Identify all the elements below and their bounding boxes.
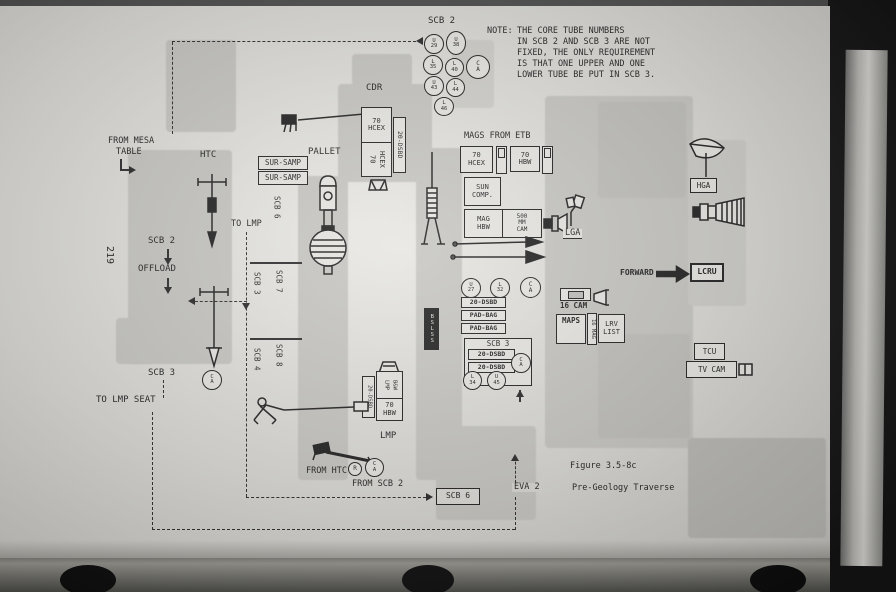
cap-dispenser-circle: CA xyxy=(365,458,384,477)
dashed-line xyxy=(172,42,173,134)
film-type: B&W xyxy=(391,380,397,390)
cdr-label: CDR xyxy=(366,84,382,94)
dust-brush-icon xyxy=(306,226,350,276)
cam16-lens-icon xyxy=(592,289,610,306)
lga-label: LGA xyxy=(563,229,582,239)
bslss-pack: BSLSS xyxy=(424,308,439,350)
mag16-label: 16 MAG xyxy=(589,319,595,339)
lcru-label: LCRU xyxy=(697,268,716,276)
maps-box: MAPS xyxy=(556,314,586,344)
core-tube-circle: U29 xyxy=(424,34,444,54)
arrowhead-down xyxy=(164,287,172,298)
tube-number: 44 xyxy=(452,88,459,94)
figure-title: Pre-Geology Traverse xyxy=(572,484,674,493)
scb3-box-title: SCB 3 xyxy=(487,340,510,348)
core-tube-circle: L46 xyxy=(434,97,454,116)
rover-silhouette-part xyxy=(166,40,236,132)
from-mesa-label2: TABLE xyxy=(116,148,142,157)
binder-edge-strip xyxy=(840,50,887,566)
film-owner: LMP xyxy=(383,380,389,390)
hammer-staff-icon xyxy=(194,170,230,248)
from-mesa-label: FROM MESA xyxy=(108,137,154,146)
pallet-label: PALLET xyxy=(308,148,341,158)
arrowhead-up xyxy=(511,450,519,461)
tongs-tool-icon xyxy=(250,394,372,426)
dashed-line xyxy=(515,497,516,530)
film-mag-strip xyxy=(496,146,507,174)
scb2-top-label: SCB 2 xyxy=(428,17,455,27)
maps-label: MAPS xyxy=(562,317,580,325)
dashed-line xyxy=(246,232,247,497)
dsbd-bag-vertical: 20-DSBD xyxy=(393,117,406,173)
arrowhead-right xyxy=(129,166,140,174)
punch-hole xyxy=(60,565,116,592)
rover-wheel xyxy=(598,334,690,438)
flashlight-tool-icon xyxy=(314,172,342,234)
htc-label: HTC xyxy=(200,151,216,161)
dashed-line xyxy=(163,380,164,398)
mags-from-etb-label: MAGS FROM ETB xyxy=(464,132,531,141)
core-tube-circle: L44 xyxy=(446,78,465,97)
figure-number: Figure 3.5-8c xyxy=(570,462,637,471)
rover-silhouette-part xyxy=(436,426,536,520)
scb8-vertical-label: SCB 8 xyxy=(274,344,282,367)
scb4-vertical-label: SCB 4 xyxy=(252,348,260,371)
tube-number: 46 xyxy=(441,107,448,113)
film-type: HCEX xyxy=(468,160,485,167)
lrv-list-label: LIST xyxy=(603,329,620,336)
divider-line xyxy=(250,338,302,340)
note-line: FIXED, THE ONLY REQUIREMENT xyxy=(517,49,655,58)
from-htc-label: FROM HTC xyxy=(306,467,347,476)
scb2-left-label: SCB 2 xyxy=(148,237,175,247)
bslss-label: BSLSS xyxy=(429,314,435,344)
arrowhead-down xyxy=(242,303,250,314)
core-tube-circle: U38 xyxy=(446,31,466,55)
punch-hole xyxy=(402,565,454,592)
core-tube-circle: L34 xyxy=(463,371,482,390)
page-number: 219 xyxy=(104,246,115,264)
hga-box: HGA xyxy=(690,178,717,193)
tube-number: 45 xyxy=(493,381,500,387)
hga-dish-icon xyxy=(684,132,728,178)
mag-hbw-500cam: MAG HBW 500 MM CAM xyxy=(464,209,542,238)
rake-tool-icon xyxy=(278,106,366,136)
dsbd-label: 20-DSBD xyxy=(396,131,403,158)
sur-samp-label: SUR-SAMP xyxy=(265,174,301,182)
from-scb2-label: FROM SCB 2 xyxy=(352,480,403,489)
tv-cam-box: TV CAM xyxy=(686,361,737,378)
tv-cam-label: TV CAM xyxy=(698,366,725,374)
forward-label: FORWARD xyxy=(620,269,654,278)
divider-line xyxy=(250,262,302,264)
arrowhead-up xyxy=(516,386,524,397)
cap-dispenser-circle: CA xyxy=(466,55,490,79)
note-line: IN SCB 2 AND SCB 3 ARE NOT xyxy=(517,38,650,47)
cap-dispenser-circle: CA xyxy=(202,370,222,390)
tube-number: 38 xyxy=(453,43,460,49)
sur-samp-bag: SUR-SAMP xyxy=(258,156,308,170)
cdr-film-stack: 70 HCEX 70 HCEX xyxy=(361,107,392,177)
cap-letter: A xyxy=(476,67,480,73)
lga-antenna-icon xyxy=(558,194,588,228)
r-tag-letter: R xyxy=(353,466,357,472)
cap-dispenser-circle: CA xyxy=(511,353,531,373)
arrowhead-left xyxy=(412,37,423,45)
cam16-label: 16 CAM xyxy=(560,302,587,310)
to-lmp-seat-label: TO LMP SEAT xyxy=(96,396,156,406)
film-type: HCEX xyxy=(378,151,385,168)
film-type: HCEX xyxy=(368,125,385,132)
cap-letter: A xyxy=(529,288,533,294)
tube-number: 43 xyxy=(431,86,438,92)
core-tube-circle: U43 xyxy=(424,76,444,96)
film-type: HBW xyxy=(383,410,396,417)
lmp-film-stack: LMP B&W 70 HBW xyxy=(376,371,403,421)
bracket-icon xyxy=(738,363,754,377)
film-mag-70-hbw: 70 HBW xyxy=(510,146,540,172)
core-tube-circle: L35 xyxy=(423,55,443,75)
pad-bag: PAD-BAG xyxy=(461,323,506,334)
tcu-box: TCU xyxy=(694,343,725,360)
cap-letter: A xyxy=(210,380,213,386)
dashed-line xyxy=(172,41,416,42)
r-tag-circle: R xyxy=(348,462,362,476)
scb6-vertical-label: SCB 6 xyxy=(272,196,280,219)
pad-bag: PAD-BAG xyxy=(461,310,506,321)
note-label: NOTE: xyxy=(487,27,513,36)
core-tube-circle: L32 xyxy=(490,278,510,298)
note-line: IS THAT ONE UPPER AND ONE xyxy=(517,60,645,69)
scoop-tool-icon xyxy=(452,236,544,250)
mag16-strip: 16 MAG xyxy=(587,313,597,345)
scoop-staff-icon xyxy=(196,282,232,368)
tube-number: 27 xyxy=(468,288,475,294)
note-line: LOWER TUBE BE PUT IN SCB 3. xyxy=(517,71,655,80)
note-line: THE CORE TUBE NUMBERS xyxy=(517,27,624,36)
hga-label: HGA xyxy=(697,182,711,190)
dashed-line xyxy=(246,497,426,498)
eva-label: EVA 2 xyxy=(512,483,542,492)
dashed-line xyxy=(152,529,515,530)
scoop-tool-icon xyxy=(450,250,546,264)
pad-bag-label: PAD-BAG xyxy=(470,325,497,332)
cam16-box xyxy=(560,288,591,301)
tube-number: 40 xyxy=(451,68,458,74)
cap-letter: A xyxy=(373,468,376,474)
cap-letter: A xyxy=(519,363,522,369)
pad-bag-label: PAD-BAG xyxy=(470,312,497,319)
dashed-line xyxy=(152,412,153,530)
scanned-page-photo: 219 NOTE: THE CORE TUBE NUMBERS IN SCB 2… xyxy=(0,0,896,592)
tube-number: 34 xyxy=(469,381,476,387)
scb7-vertical-label: SCB 7 xyxy=(274,270,282,293)
core-tube-circle: L40 xyxy=(445,58,464,77)
sur-samp-label: SUR-SAMP xyxy=(265,159,301,167)
tv-camera-icon xyxy=(692,196,748,228)
tcu-label: TCU xyxy=(703,348,717,356)
dsbd-label: 20-DSBD xyxy=(470,299,497,306)
scb3-vertical-label: SCB 3 xyxy=(252,272,260,295)
film-type: HBW xyxy=(519,159,532,166)
arrowhead-left xyxy=(184,297,195,305)
tube-number: 35 xyxy=(430,65,437,71)
tube-number: 29 xyxy=(431,44,438,50)
film-mag-70-hcex: 70 HCEX xyxy=(460,146,493,173)
mag-label: HBW xyxy=(477,224,490,231)
camera-stand-icon xyxy=(366,178,390,194)
tube-number: 32 xyxy=(497,288,504,294)
core-tube-circle: U45 xyxy=(487,371,506,390)
rover-wheel xyxy=(598,102,686,198)
film-size: 70 xyxy=(368,155,375,163)
rover-silhouette-part xyxy=(352,54,412,86)
lmp-label: LMP xyxy=(380,432,396,442)
sun-compass-label: COMP. xyxy=(472,192,493,199)
offload-label: OFFLOAD xyxy=(138,265,176,275)
lrv-list-box: LRV LIST xyxy=(598,314,625,343)
scb6-box: SCB 6 xyxy=(436,488,480,505)
cap-dispenser-circle: CA xyxy=(520,277,541,298)
punch-hole xyxy=(750,565,806,592)
rover-silhouette-part xyxy=(688,438,826,538)
dsbd-bag: 20-DSBD xyxy=(468,349,515,360)
sur-samp-bag: SUR-SAMP xyxy=(258,171,308,185)
dsbd-label: 20-DSBD xyxy=(478,364,505,371)
lcru-box: LCRU xyxy=(690,263,724,282)
cam500-label: CAM xyxy=(517,227,528,233)
scb3-left-label: SCB 3 xyxy=(148,369,175,379)
dsbd-bag: 20-DSBD xyxy=(461,297,506,308)
scb6-label: SCB 6 xyxy=(446,492,470,500)
sun-compass: SUN COMP. xyxy=(464,177,501,206)
film-mag-strip xyxy=(542,146,553,174)
to-lmp-label: TO LMP xyxy=(231,220,262,229)
core-stem-icon xyxy=(420,150,446,250)
dsbd-label: 20-DSBD xyxy=(478,351,505,358)
rover-silhouette-part xyxy=(116,318,154,364)
core-tube-circle: U27 xyxy=(461,278,481,298)
